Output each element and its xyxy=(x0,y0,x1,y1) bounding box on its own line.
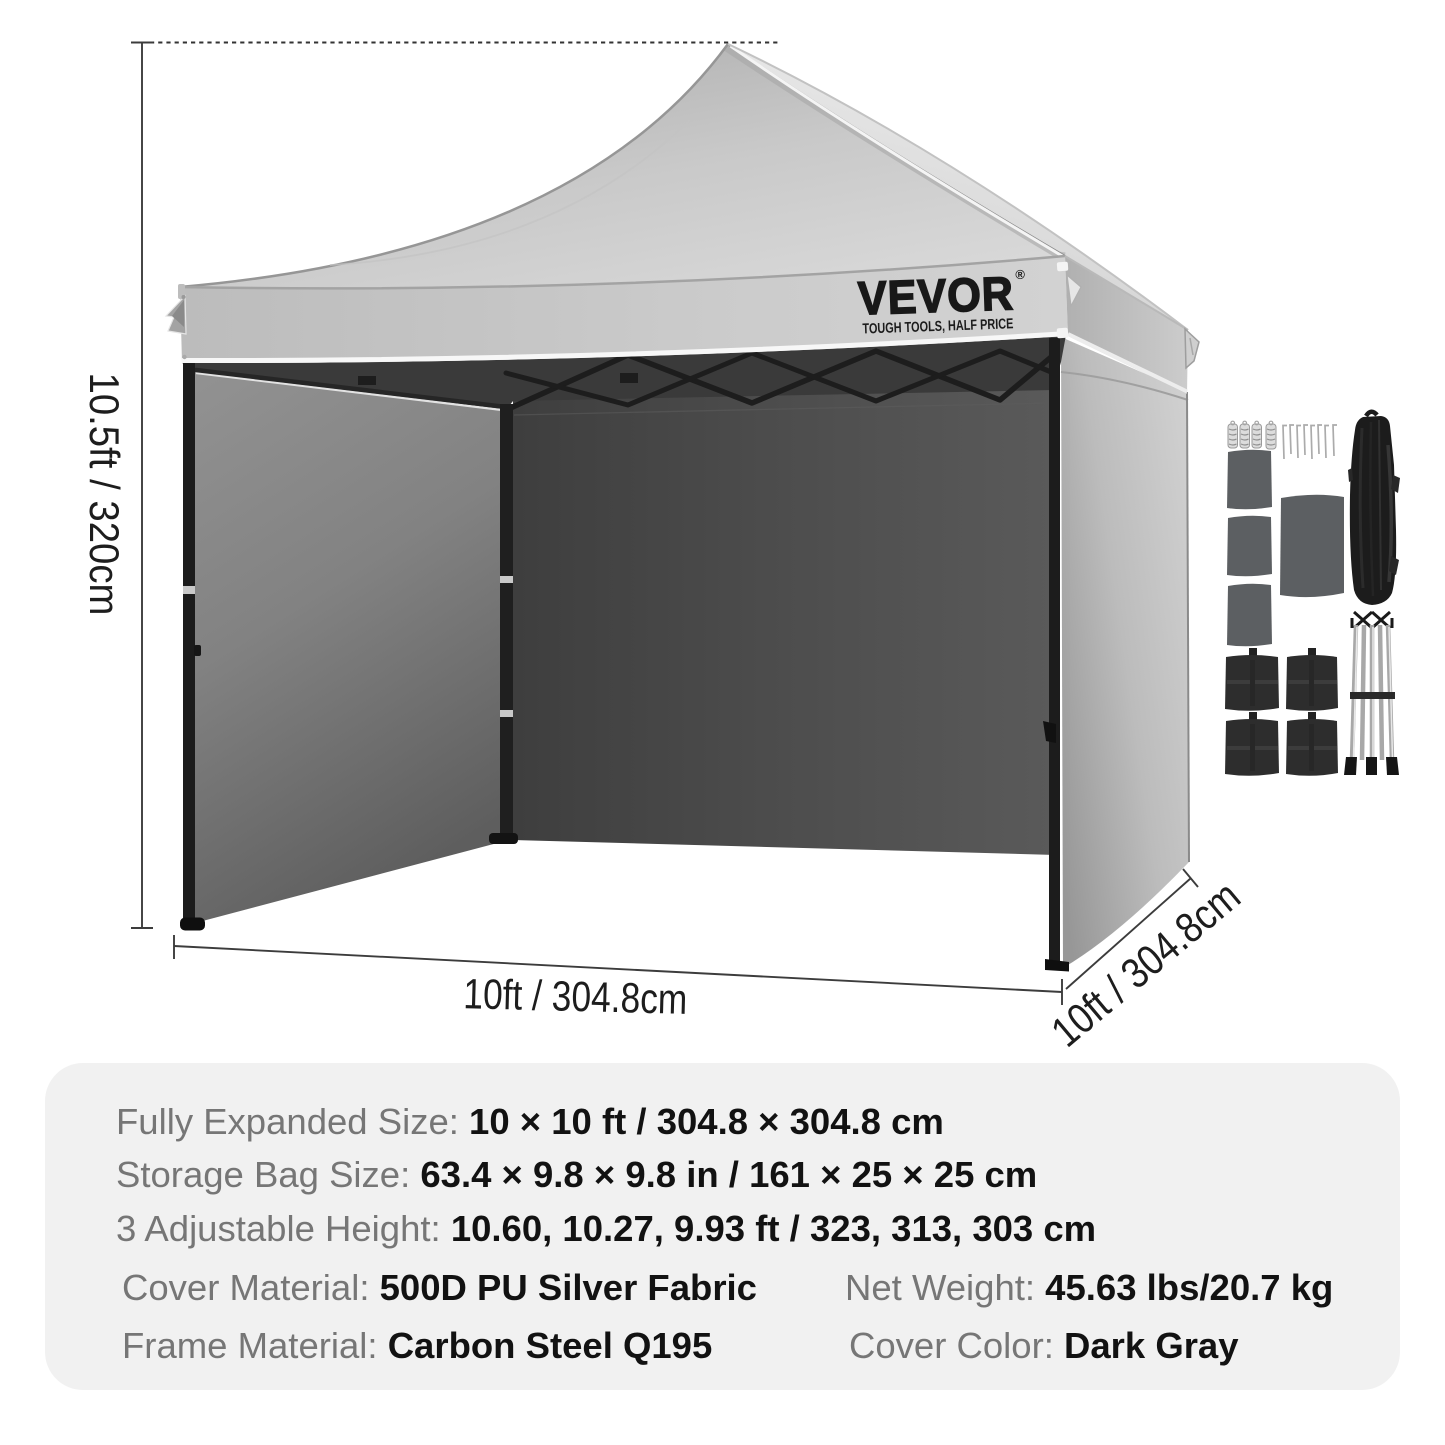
svg-text:Frame Material: Carbon Steel Q: Frame Material: Carbon Steel Q195 xyxy=(122,1325,712,1366)
svg-text:VEVOR: VEVOR xyxy=(857,266,1015,324)
svg-text:3 Adjustable Height: 10.60, 10: 3 Adjustable Height: 10.60, 10.27, 9.93 … xyxy=(116,1208,1096,1249)
svg-text:Cover Color: Dark Gray: Cover Color: Dark Gray xyxy=(849,1325,1239,1366)
svg-text:Storage Bag Size: 63.4 × 9.8 ×: Storage Bag Size: 63.4 × 9.8 × 9.8 in / … xyxy=(116,1154,1037,1195)
svg-text:10.5ft / 320cm: 10.5ft / 320cm xyxy=(81,373,128,616)
svg-text:10ft / 304.8cm: 10ft / 304.8cm xyxy=(463,971,688,1024)
svg-text:Fully Expanded Size: 10 × 10 f: Fully Expanded Size: 10 × 10 ft / 304.8 … xyxy=(116,1101,944,1142)
svg-text:Net Weight: 45.63 lbs/20.7 kg: Net Weight: 45.63 lbs/20.7 kg xyxy=(845,1267,1333,1308)
svg-text:Cover Material: 500D PU Silver: Cover Material: 500D PU Silver Fabric xyxy=(122,1267,757,1308)
svg-text:®: ® xyxy=(1015,267,1026,282)
